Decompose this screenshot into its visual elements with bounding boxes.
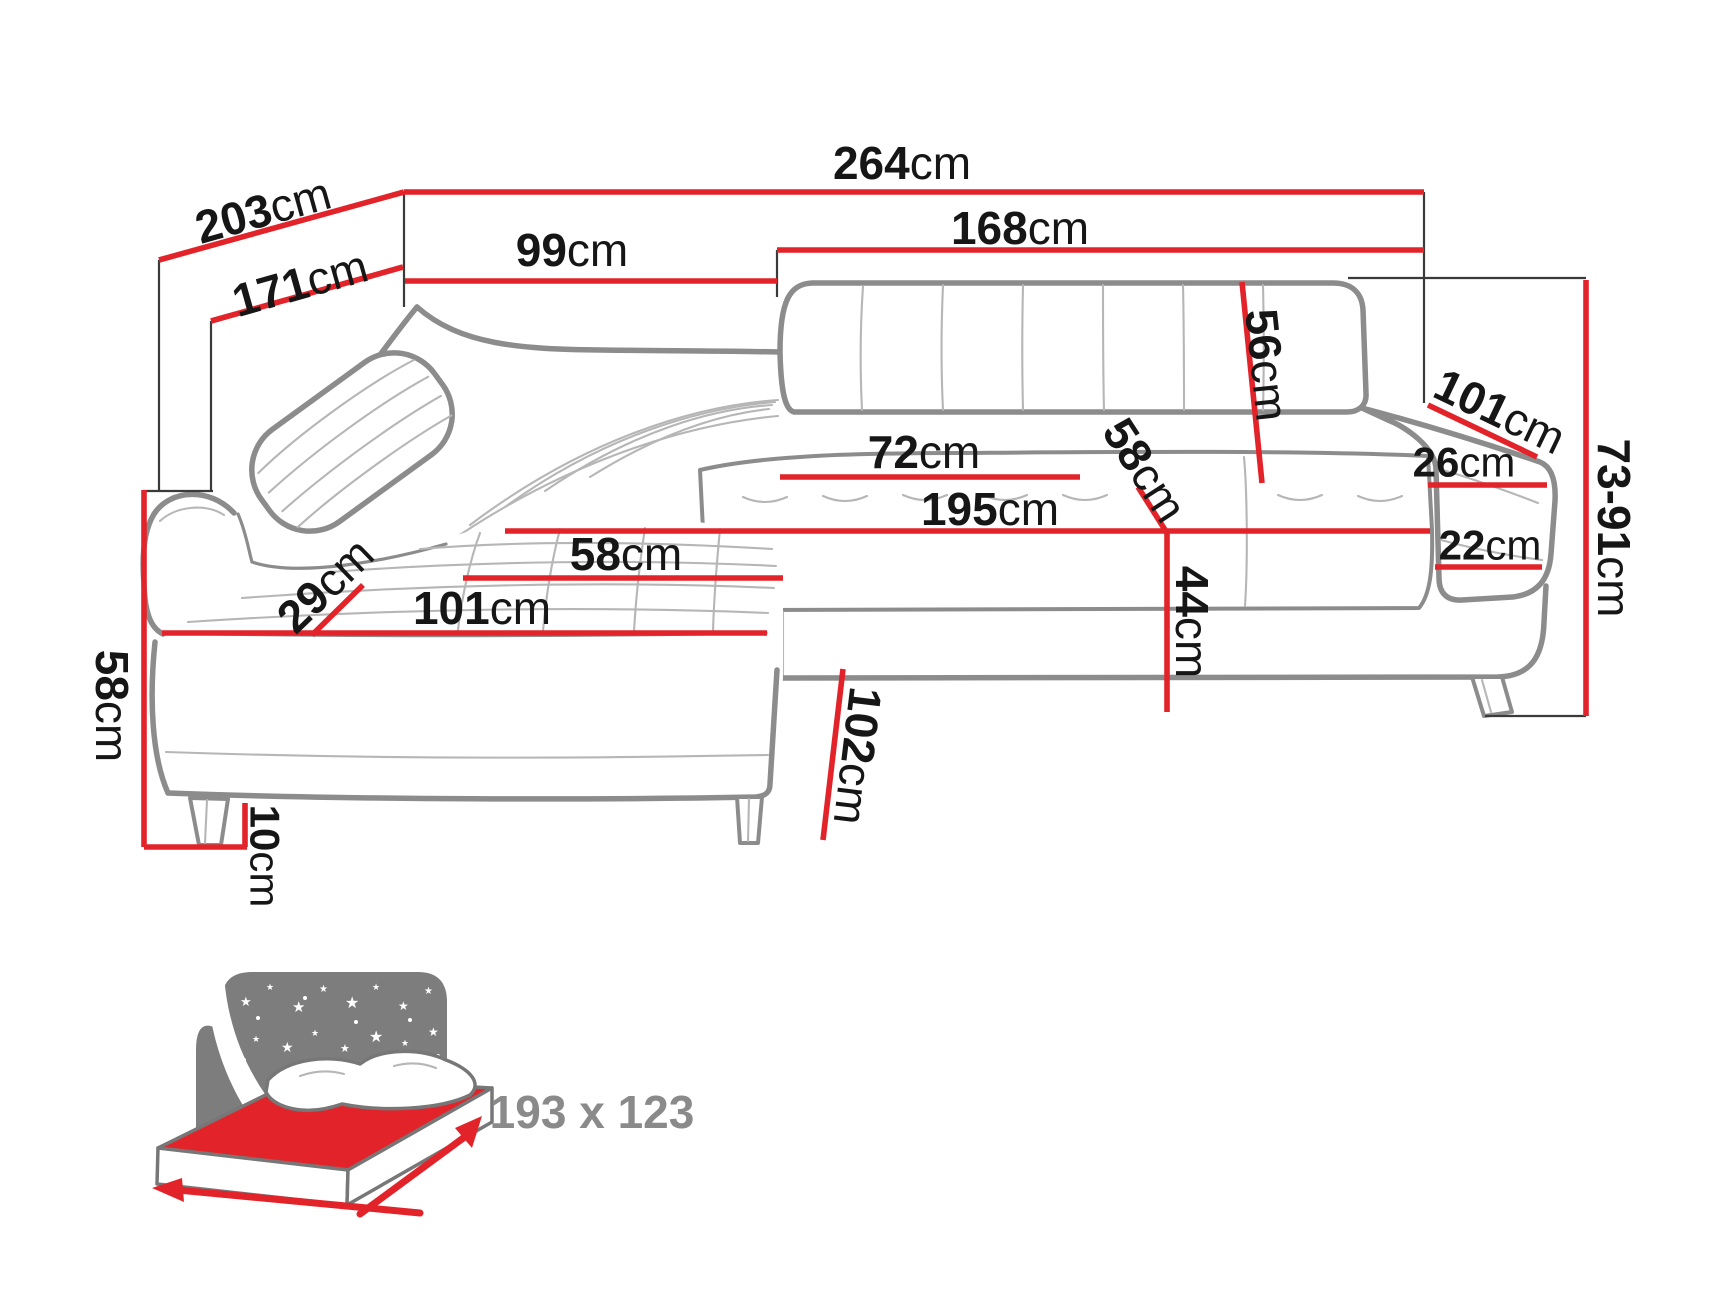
- svg-text:★: ★: [238, 1074, 247, 1085]
- sleeping-function-icon: ★★ ★★ ★★ ★★ ★★ ★★ ★★ ★★ ★★ ★★ ★★ ★★ ★★ ★…: [152, 972, 492, 1214]
- diagram-canvas: 264cm 168cm 203cm 171cm 99cm 56cm 101cm …: [0, 0, 1726, 1295]
- dim-height-range-label: 73-91cm: [1588, 439, 1640, 618]
- right-leg: [1472, 677, 1512, 716]
- svg-text:★: ★: [319, 984, 328, 995]
- svg-text:★: ★: [292, 998, 305, 1016]
- svg-text:★: ★: [369, 1027, 383, 1046]
- svg-text:★: ★: [340, 1042, 350, 1055]
- dim-sofa-back-width-label: 168cm: [951, 202, 1089, 254]
- svg-text:★: ★: [311, 1029, 319, 1039]
- svg-text:★: ★: [428, 1025, 439, 1039]
- dim-side-height-label: 58cm: [86, 650, 138, 763]
- svg-text:★: ★: [424, 986, 433, 997]
- dim-chaise-front-length-label: 101cm: [413, 582, 551, 634]
- dim-armrest-front-height-label: 22cm: [1439, 522, 1542, 569]
- svg-text:★: ★: [281, 1040, 294, 1056]
- dim-armrest-top-width-label: 26cm: [1413, 439, 1516, 486]
- svg-text:★: ★: [345, 993, 359, 1012]
- sleeping-area-label: 193 x 123: [490, 1086, 695, 1138]
- dim-corner-seat-width-label: 58cm: [570, 528, 683, 580]
- svg-text:★: ★: [372, 983, 380, 993]
- svg-text:★: ★: [252, 1035, 260, 1045]
- dim-chaise-depth-label: 102cm: [824, 684, 892, 827]
- sofa-dimension-diagram: 264cm 168cm 203cm 171cm 99cm 56cm 101cm …: [0, 0, 1726, 1295]
- dim-depth-inner-label: 171cm: [227, 239, 374, 326]
- dim-leg-height-label: 10cm: [241, 805, 288, 908]
- dim-corner-back-width-label: 99cm: [516, 224, 629, 276]
- dim-seat-length-label: 195cm: [921, 483, 1059, 535]
- dim-depth-total-label: 203cm: [190, 167, 337, 254]
- left-leg: [190, 798, 228, 845]
- svg-text:★: ★: [240, 995, 252, 1010]
- svg-text:★: ★: [266, 983, 274, 993]
- dim-seat-height-label: 44cm: [1166, 566, 1218, 679]
- svg-text:★: ★: [401, 1039, 409, 1049]
- dim-overall-width-label: 264cm: [833, 137, 971, 189]
- dim-seat-back-width-label: 72cm: [868, 426, 981, 478]
- svg-text:★: ★: [398, 999, 409, 1013]
